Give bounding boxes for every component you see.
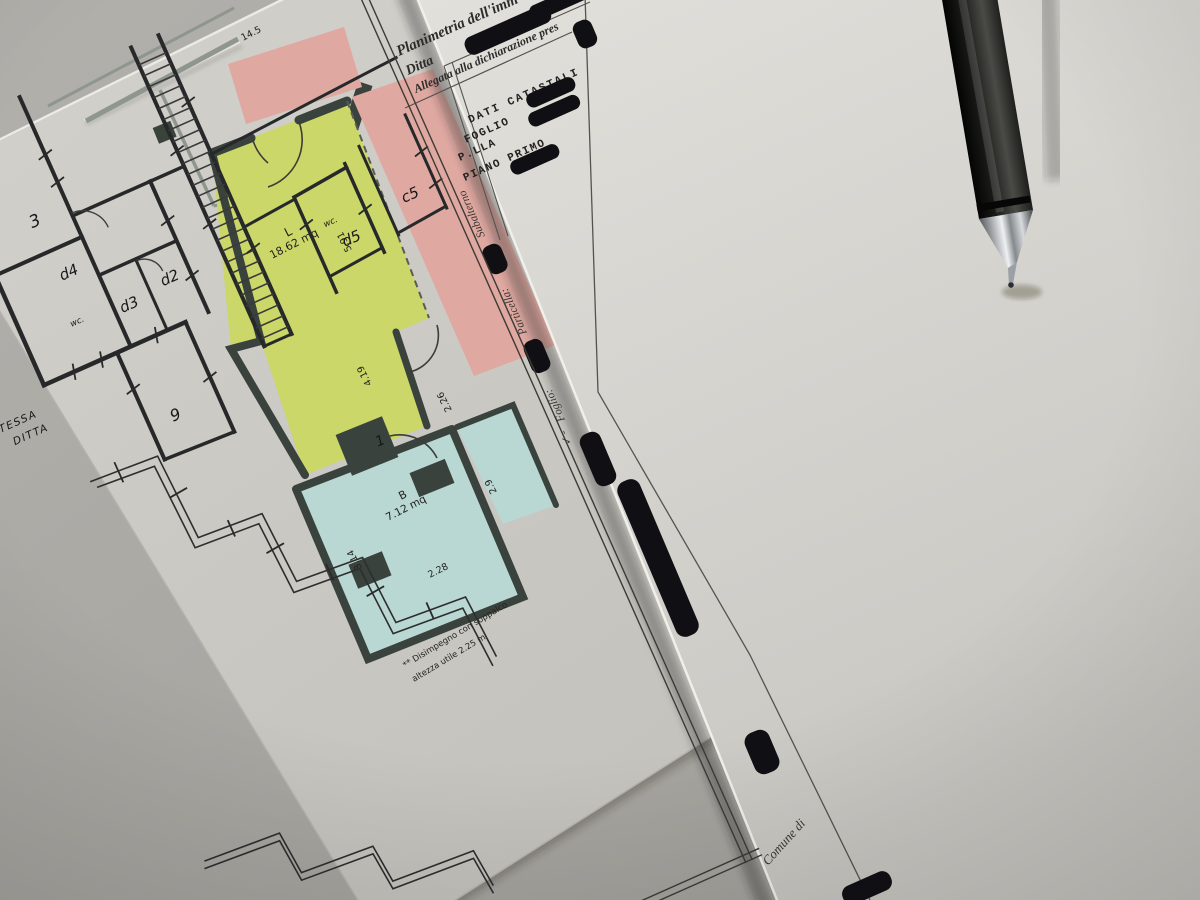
photo-vignette (0, 0, 1200, 900)
photo-of-floor-plan-documents: L 18.62 mq B 7.12 mq 2.28 5.91 4.19 2.26… (0, 0, 1200, 900)
photo-canvas: L 18.62 mq B 7.12 mq 2.28 5.91 4.19 2.26… (0, 0, 1200, 900)
